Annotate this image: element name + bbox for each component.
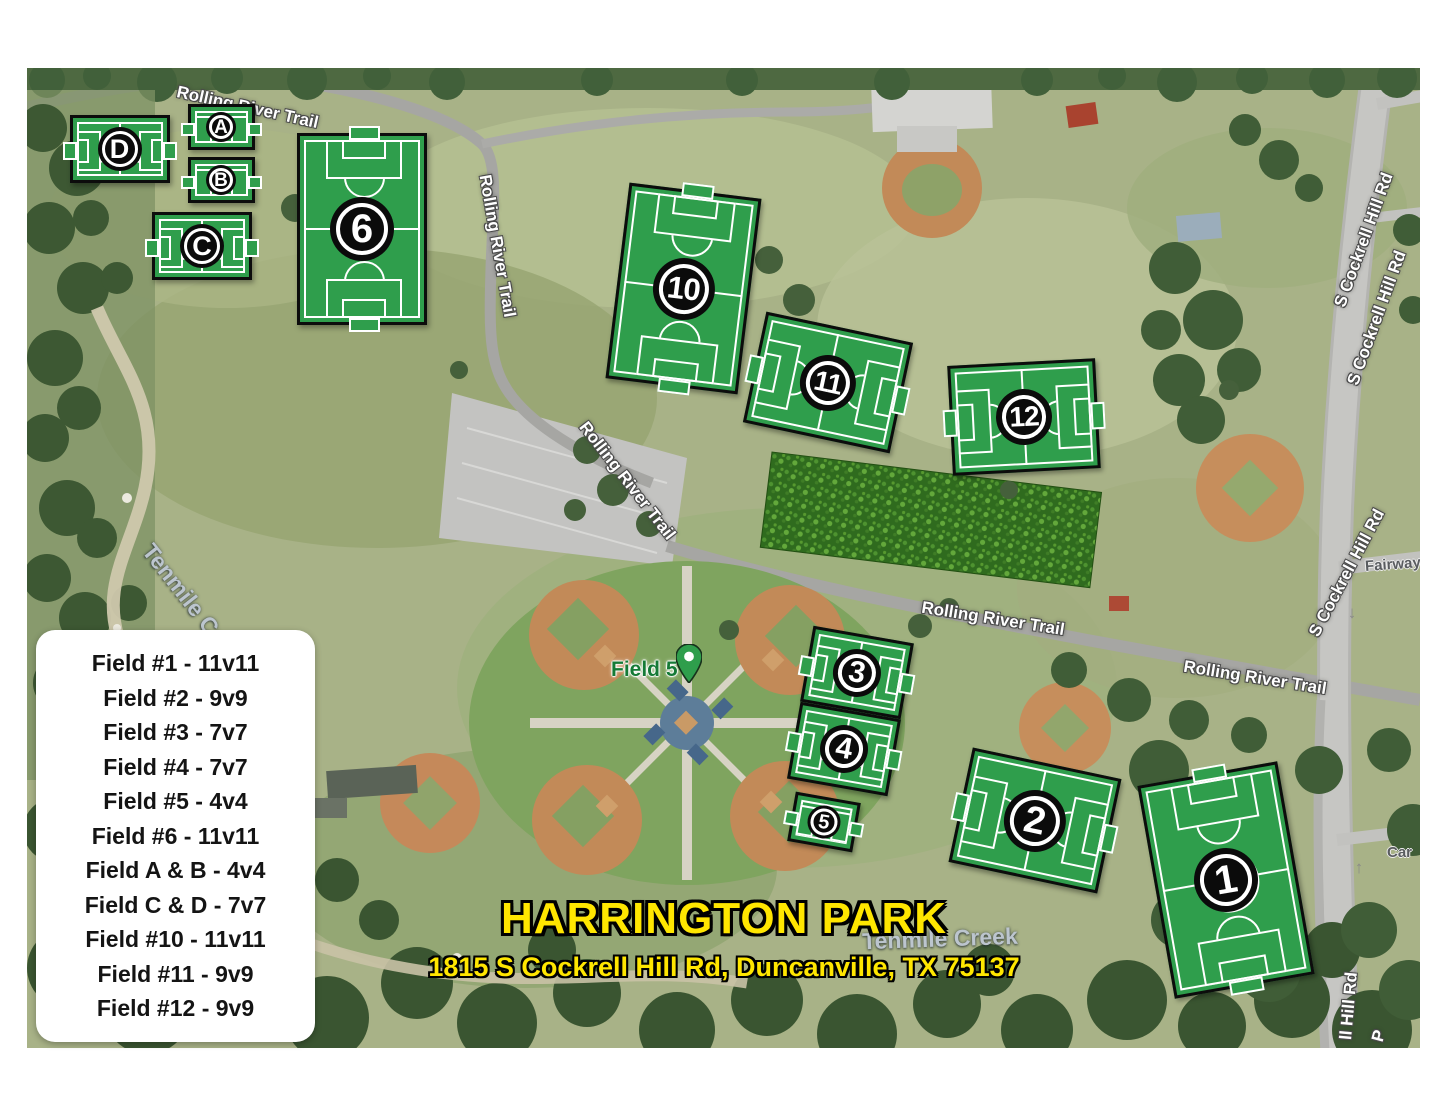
pitch-marking [1090,401,1105,429]
map-label-field5-poi: Field 5 [611,658,678,682]
pitch-marking [349,126,380,140]
field-12-overlay: 12 [947,358,1101,476]
pitch-marking [248,123,262,136]
pitch-marking [848,822,864,838]
pitch-marking [342,140,386,159]
pitch-marking [77,139,89,163]
field-D-badge: D [98,127,142,171]
field-D-overlay: D [70,115,170,183]
field-6-overlay: 6 [297,133,427,325]
legend-item: Field A & B - 4v4 [86,853,266,888]
legend-item: Field #6 - 11v11 [92,819,260,854]
map-pin-icon [676,644,702,683]
field-B-badge: B [206,165,236,195]
field-A-badge: A [206,112,236,142]
field-10-label: 10 [665,271,701,306]
pitch-marking [342,299,386,318]
legend-item: Field #3 - 7v7 [103,715,247,750]
pitch-marking [151,139,163,163]
field-10-overlay: 10 [605,182,761,394]
pitch-marking [163,142,177,160]
pitch-marking [63,142,77,160]
legend-panel: Field #1 - 11v11Field #2 - 9v9Field #3 -… [36,630,315,1042]
field-C-badge: C [180,224,224,268]
map-label-car-street: Car [1387,844,1412,861]
field-12-label: 12 [1009,402,1040,431]
field-C-overlay: C [152,212,252,280]
pitch-marking [145,239,159,257]
pitch-marking [943,409,958,437]
title-block: HARRINGTON PARK 1815 S Cockrell Hill Rd,… [374,894,1074,983]
map-label-road-arrow-down: ↓ [1348,603,1357,623]
legend-item: Field C & D - 7v7 [85,888,266,923]
field-6-label: 6 [351,209,373,249]
pitch-marking [245,239,259,257]
field-A-overlay: A [188,104,255,150]
field-A-label: A [214,118,228,137]
field-11-label: 11 [812,365,845,398]
pitch-marking [783,810,799,826]
field-6-badge: 6 [330,197,394,261]
park-address: 1815 S Cockrell Hill Rd, Duncanville, TX… [374,952,1074,983]
map-label-road-arrow-up: ↑ [1355,858,1364,878]
pitch-marking [233,236,245,260]
legend-item: Field #11 - 9v9 [98,957,254,992]
legend-item: Field #5 - 4v4 [103,784,247,819]
field-B-overlay: B [188,157,255,203]
field-D-label: D [110,136,130,163]
pitch-marking [159,236,171,260]
field-C-label: C [192,233,212,260]
legend-item: Field #2 - 9v9 [103,681,247,716]
page-title: HARRINGTON PARK [374,894,1074,944]
legend-item: Field #10 - 11v11 [85,922,265,957]
legend-item: Field #12 - 9v9 [97,991,254,1026]
pitch-marking [956,403,975,441]
pitch-marking [349,318,380,332]
pitch-marking [248,176,262,189]
field-B-label: B [214,171,228,190]
legend-item: Field #4 - 7v7 [103,750,247,785]
legend-item: Field #1 - 11v11 [92,646,260,681]
pitch-marking [181,123,195,136]
pitch-marking [181,176,195,189]
pitch-marking [1073,397,1092,435]
